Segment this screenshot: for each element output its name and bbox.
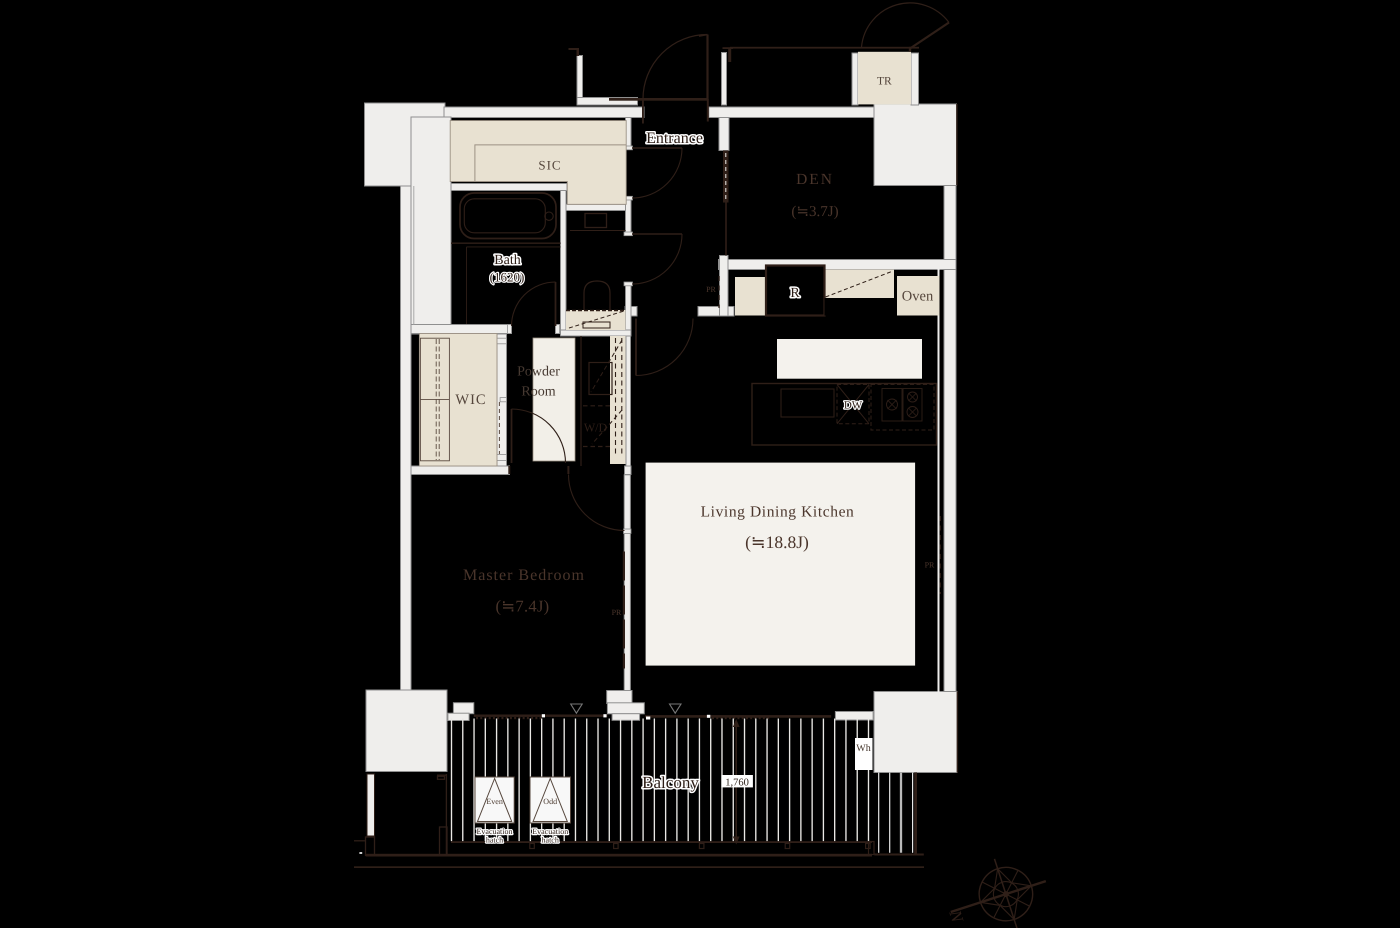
svg-text:Master Bedroom: Master Bedroom xyxy=(463,567,585,584)
svg-text:W/D: W/D xyxy=(584,421,608,435)
svg-text:TR: TR xyxy=(877,76,892,88)
svg-text:Living Dining Kitchen: Living Dining Kitchen xyxy=(701,504,855,521)
svg-text:DW: DW xyxy=(844,400,863,412)
svg-text:Powder: Powder xyxy=(517,365,560,380)
svg-text:(≒3.7J): (≒3.7J) xyxy=(791,204,838,220)
svg-text:(≒7.4J): (≒7.4J) xyxy=(496,597,550,616)
svg-text:hatch: hatch xyxy=(486,836,503,845)
svg-text:Odd: Odd xyxy=(543,797,557,806)
svg-text:Entrance: Entrance xyxy=(646,130,703,147)
svg-text:PR: PR xyxy=(612,608,622,617)
svg-text:hatch: hatch xyxy=(542,836,559,845)
svg-text:Room: Room xyxy=(521,385,555,400)
svg-text:(≒18.8J): (≒18.8J) xyxy=(745,532,809,552)
svg-text:Balcony: Balcony xyxy=(642,773,699,792)
svg-text:SIC: SIC xyxy=(538,158,561,173)
svg-text:R: R xyxy=(790,286,800,301)
svg-text:PR: PR xyxy=(706,285,716,294)
svg-text:Wh: Wh xyxy=(856,743,870,754)
svg-text:Bath: Bath xyxy=(494,253,520,268)
svg-text:DEN: DEN xyxy=(796,171,834,188)
svg-text:(1620): (1620) xyxy=(490,270,525,285)
svg-text:Oven: Oven xyxy=(902,289,934,305)
svg-text:WIC: WIC xyxy=(455,392,486,408)
svg-text:1,760: 1,760 xyxy=(725,778,749,789)
svg-text:PR: PR xyxy=(925,561,935,570)
svg-text:Even: Even xyxy=(486,797,502,806)
